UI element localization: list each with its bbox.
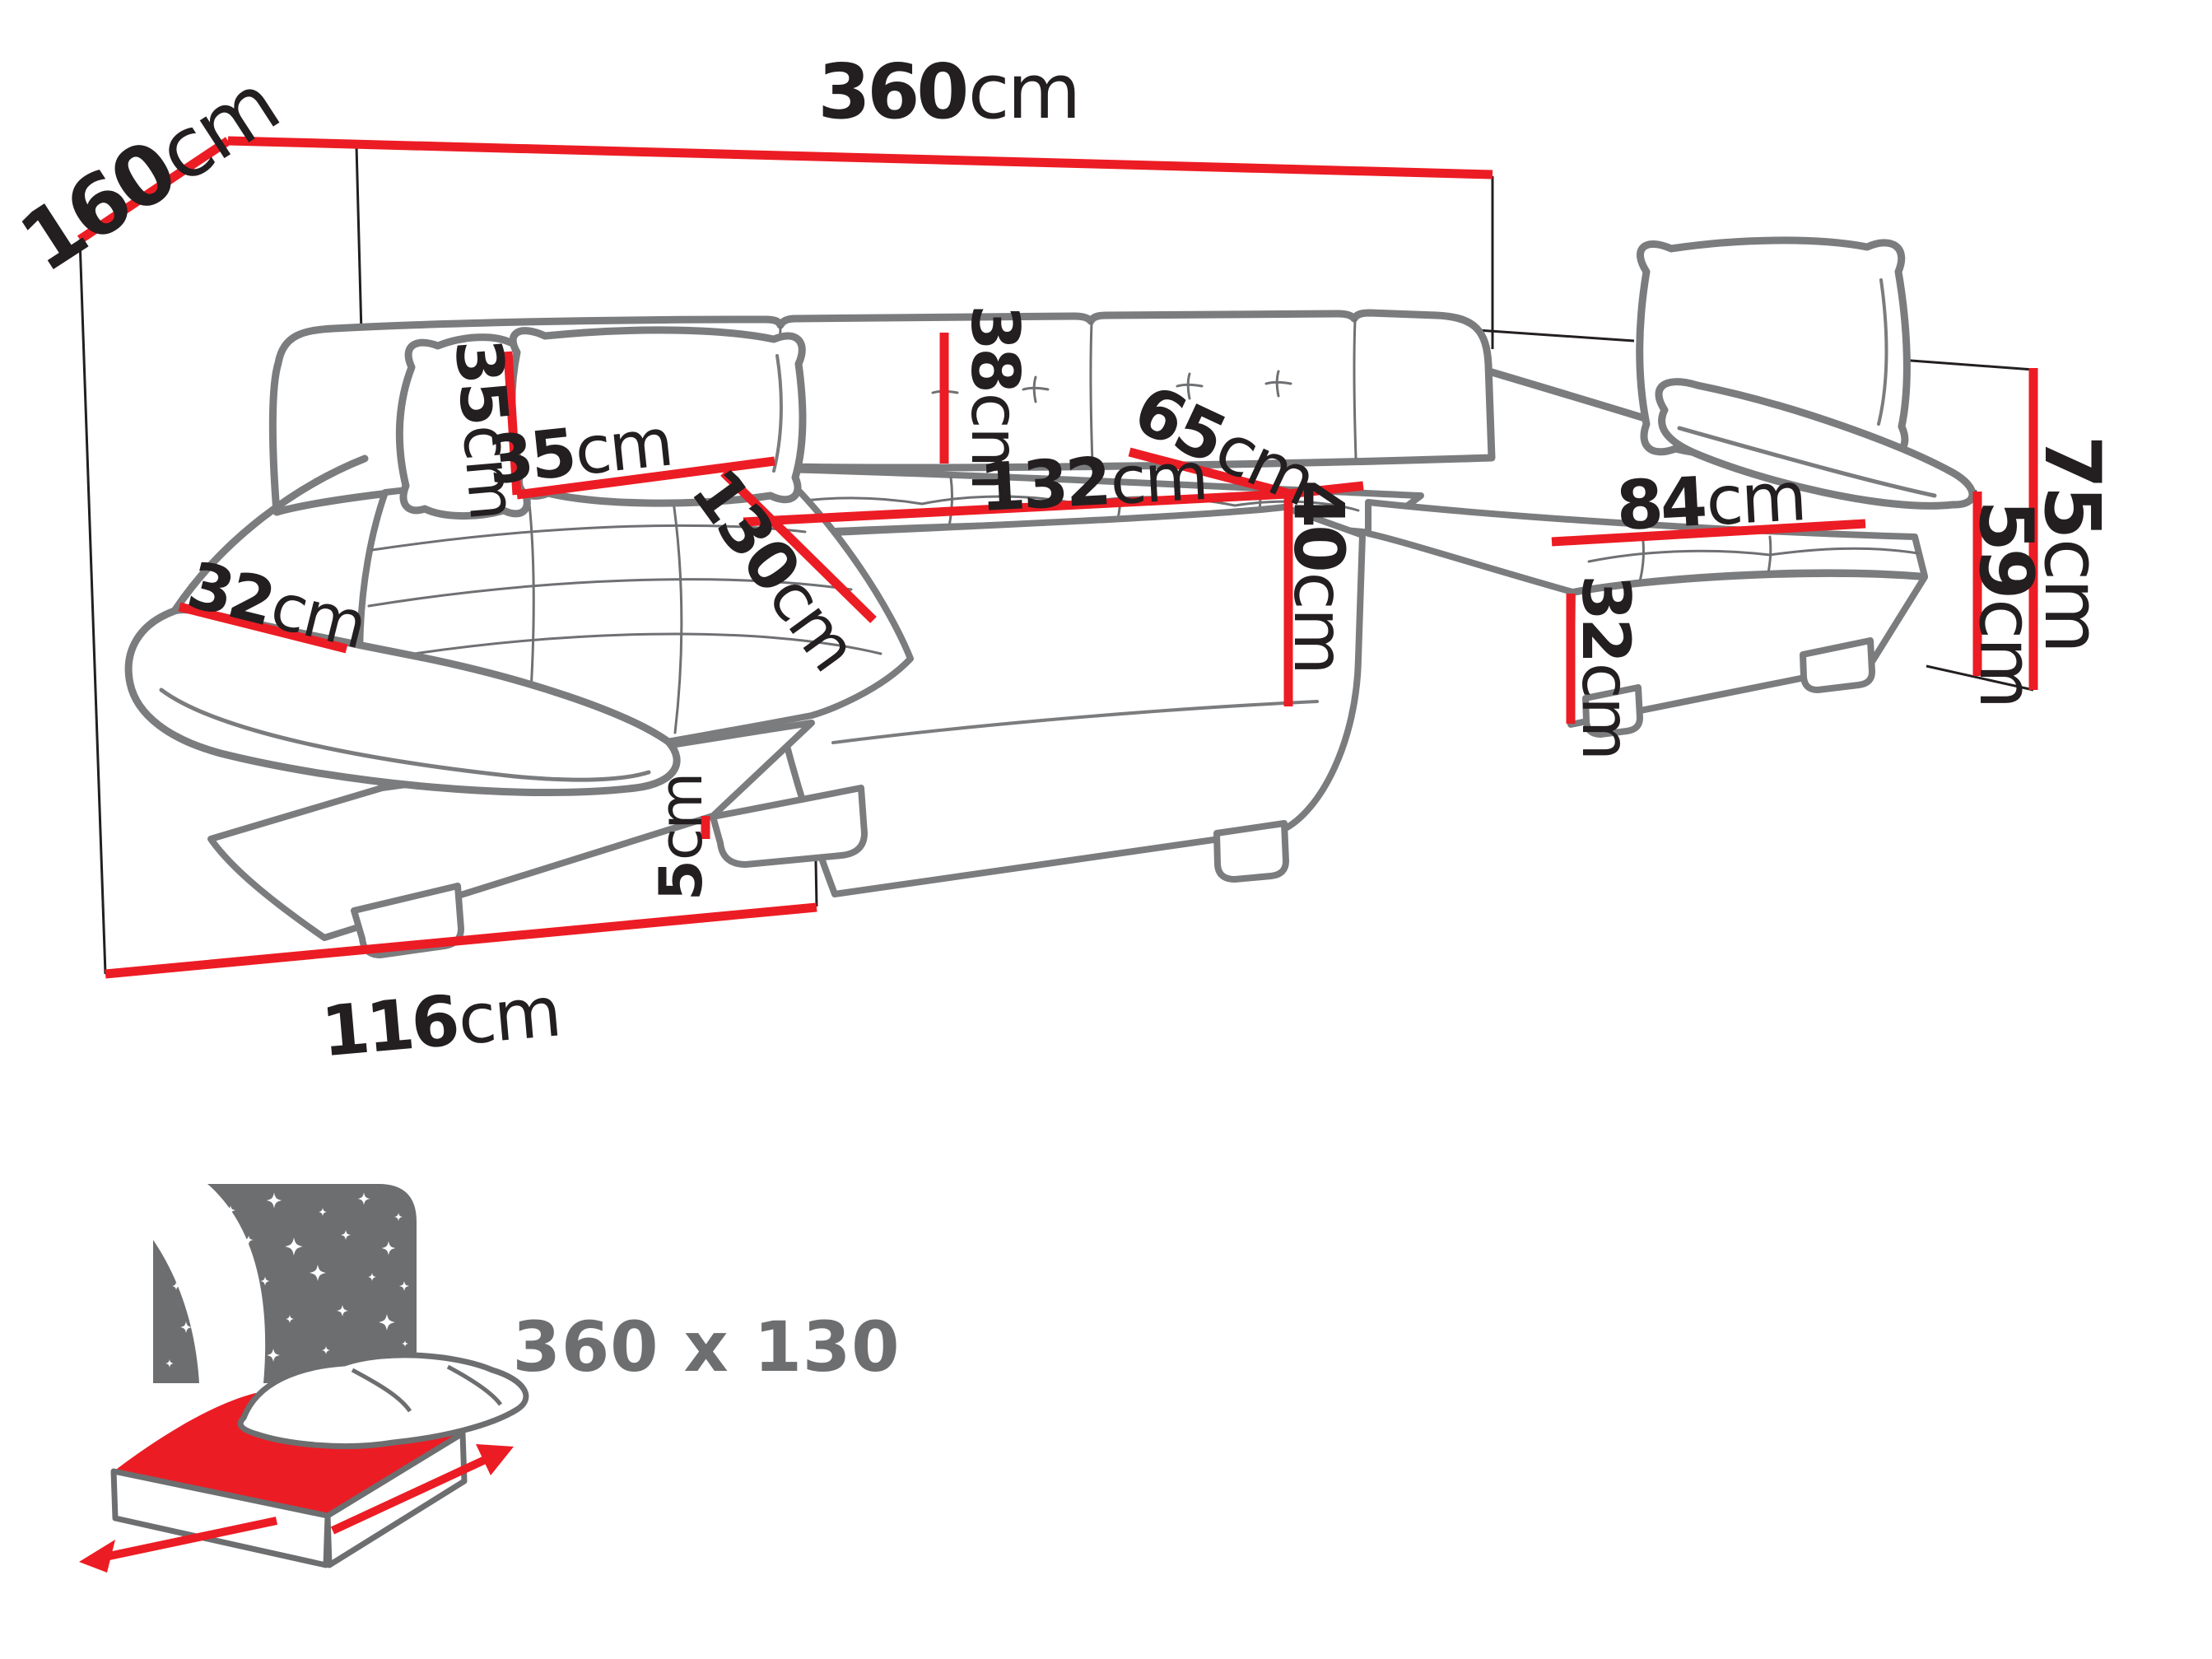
middle-leg <box>1217 823 1286 879</box>
sofa-dimension-diagram: 360cm 160cm 75cm 59cm 84cm 32cm 65cm 132… <box>0 0 2212 1659</box>
sleeping-bed-icon <box>79 1184 526 1573</box>
dim-label-armrest-height: 59cm <box>1968 500 2042 707</box>
dim-label-pillow-width: 35cm <box>485 410 675 495</box>
left-leg-b <box>713 788 864 864</box>
sofa-drawing <box>128 240 1972 955</box>
dim-label-backrest-height: 38cm <box>962 305 1027 489</box>
sofa-line-art <box>0 0 2212 1659</box>
dim-label-total-width: 360cm <box>817 54 1078 130</box>
right-panel-top-line-b <box>1900 360 2033 370</box>
dim-line-total-width <box>228 141 1493 175</box>
dim-label-seat-height: 40cm <box>1284 480 1353 673</box>
bed-size-label: 360 x 130 <box>513 1312 901 1382</box>
starry-panel-sliver <box>153 1240 199 1383</box>
dim-label-right-seat-width: 84cm <box>1614 464 1806 541</box>
dim-label-chaise-width: 116cm <box>319 977 562 1067</box>
left-wall-edge-line <box>80 240 105 974</box>
dim-label-leg-height: 5cm <box>651 774 710 901</box>
dim-label-right-base-height: 32cm <box>1572 575 1638 759</box>
right-panel-top-line-a <box>1478 330 1634 341</box>
